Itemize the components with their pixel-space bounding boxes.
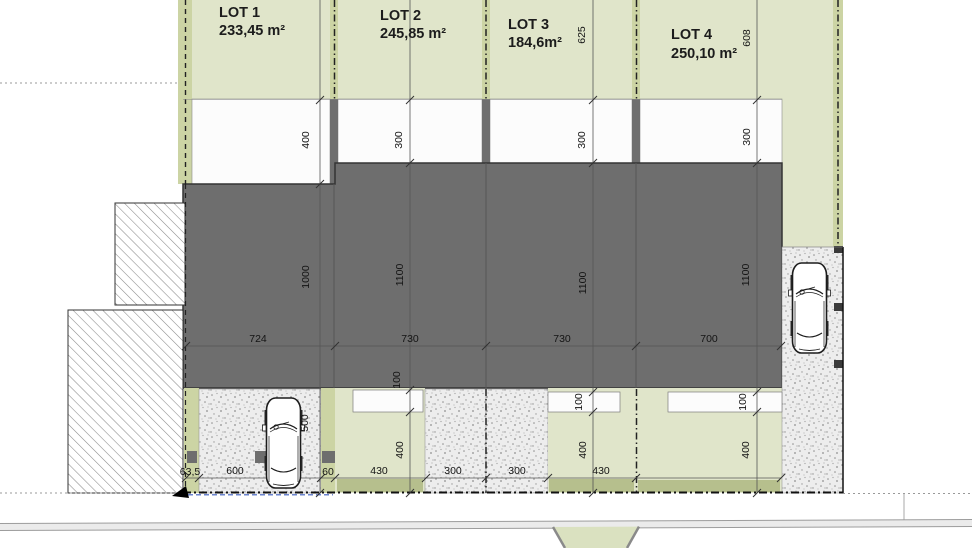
dim-100-lot3: 100 — [573, 393, 585, 411]
dim-100-lot4: 100 — [737, 393, 749, 411]
lot4-setback — [640, 99, 782, 163]
road — [0, 520, 972, 548]
fence-post-3 — [834, 360, 843, 368]
gate-post-2 — [255, 451, 266, 463]
lot3-setback — [490, 99, 632, 163]
neighbor-building-hatched-1 — [115, 203, 185, 305]
lot3-path-stipple — [486, 389, 548, 493]
building-footprint — [183, 163, 782, 388]
fence-post-2 — [834, 303, 843, 311]
lot-4-label: LOT 4 — [671, 27, 712, 43]
party-wall-3 — [632, 99, 640, 163]
lot-4-area: 250,10 m² — [671, 46, 737, 62]
dim-730-a: 730 — [401, 333, 419, 345]
lot4-terrace — [668, 392, 782, 412]
dim-625: 625 — [576, 26, 588, 44]
dim-300-lot2: 300 — [393, 131, 405, 149]
dim-400-garden-lot3: 400 — [577, 441, 589, 459]
lot-2-label: LOT 2 — [380, 8, 421, 24]
lot1-parking-stipple — [199, 389, 321, 493]
dim-300-path-lot2: 300 — [444, 465, 462, 477]
lot2-terrace — [353, 390, 423, 412]
dim-100-lot2: 100 — [391, 371, 403, 389]
dim-500-parking: 500 — [299, 414, 311, 432]
dim-608: 608 — [741, 29, 753, 47]
car-top-view-lot1 — [263, 398, 305, 488]
dim-60: 60 — [322, 466, 334, 478]
dim-400-lot1: 400 — [300, 131, 312, 149]
dim-430-lot2: 430 — [370, 465, 388, 477]
lot-1-area: 233,45 m² — [219, 23, 285, 39]
lot4-hedge — [638, 480, 780, 492]
site-plan-screenshot: LOT 1 233,45 m² LOT 2 245,85 m² LOT 3 18… — [0, 0, 972, 548]
dim-700: 700 — [700, 333, 718, 345]
party-wall-2 — [482, 99, 490, 163]
dim-430-lot3: 430 — [592, 465, 610, 477]
dim-1000: 1000 — [300, 265, 312, 289]
driveway-trapezoid — [553, 527, 639, 548]
lot-1-label: LOT 1 — [219, 5, 260, 21]
dim-400-garden-lot2: 400 — [394, 441, 406, 459]
dim-400-garden-lot4: 400 — [740, 441, 752, 459]
gate-post-1 — [187, 451, 197, 463]
dim-600: 600 — [226, 465, 244, 477]
dim-300-lot3: 300 — [576, 131, 588, 149]
neighbor-building-hatched-2 — [68, 310, 183, 493]
dim-730-b: 730 — [553, 333, 571, 345]
lot-2-area: 245,85 m² — [380, 26, 446, 42]
site-plan-svg: LOT 1 233,45 m² LOT 2 245,85 m² LOT 3 18… — [0, 0, 972, 548]
lot-3-area: 184,6m² — [508, 35, 562, 51]
dim-63-5: 63,5 — [180, 466, 201, 478]
car-top-view-lot4 — [789, 263, 831, 353]
lot3-hedge — [549, 479, 634, 492]
lot2-path-stipple — [425, 389, 486, 493]
dim-1100-lot4: 1100 — [740, 264, 752, 287]
lot-3-label: LOT 3 — [508, 17, 549, 33]
dim-300-lot4: 300 — [741, 128, 753, 146]
gate-post-3 — [322, 451, 335, 463]
dim-1100-lot3: 1100 — [577, 272, 589, 295]
dim-724: 724 — [249, 333, 267, 345]
dim-300-path-lot3: 300 — [508, 465, 526, 477]
dim-1100-lot2: 1100 — [394, 264, 406, 287]
